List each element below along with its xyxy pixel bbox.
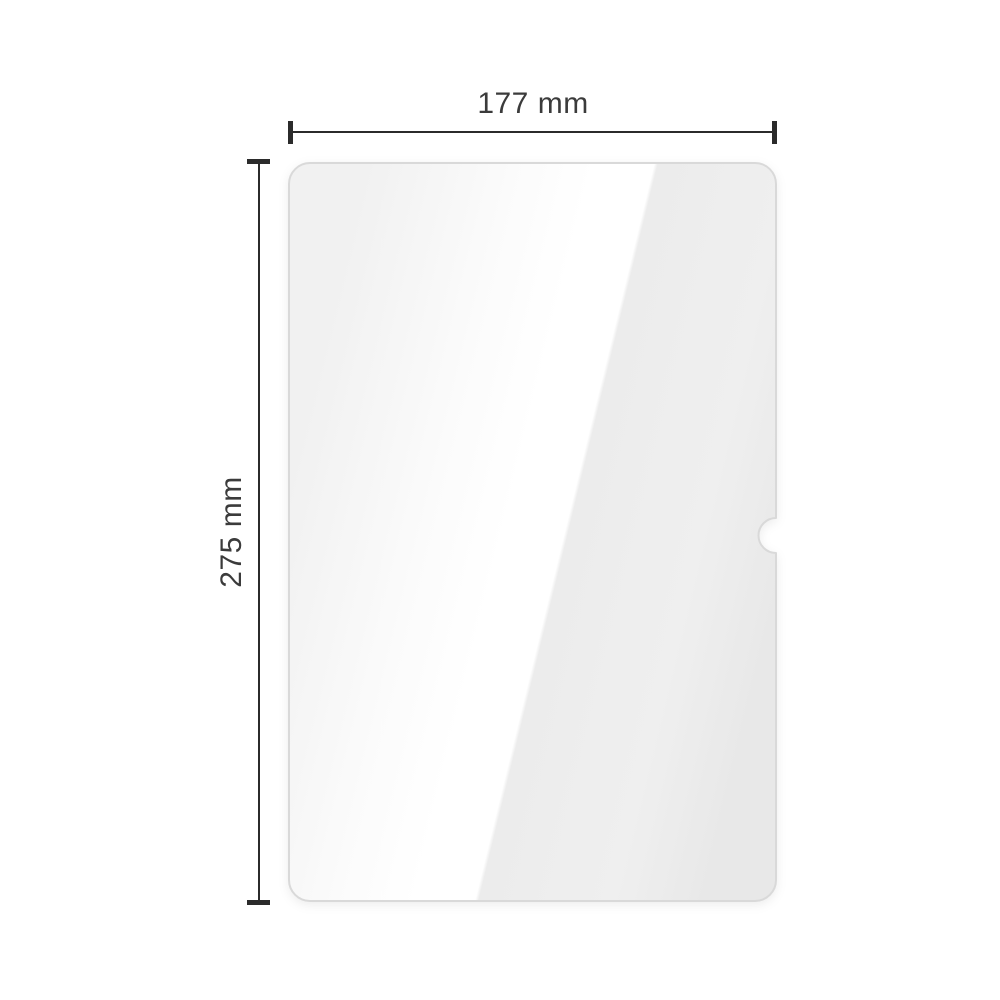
width-dimension-tick-left xyxy=(288,121,293,144)
width-dimension-line xyxy=(290,131,776,133)
height-dimension-line xyxy=(258,161,260,904)
width-dimension-label: 177 mm xyxy=(477,89,588,119)
glass-outline-with-notch xyxy=(289,163,776,901)
height-dimension-tick-bottom xyxy=(247,900,270,905)
height-dimension-tick-top xyxy=(247,159,270,164)
height-dimension-label: 275 mm xyxy=(217,476,247,587)
width-dimension-tick-right xyxy=(772,121,777,144)
glass-panel-graphic xyxy=(288,162,777,902)
screen-protector-glass xyxy=(288,162,777,902)
product-dimension-diagram: 177 mm 275 mm xyxy=(0,0,1000,1000)
